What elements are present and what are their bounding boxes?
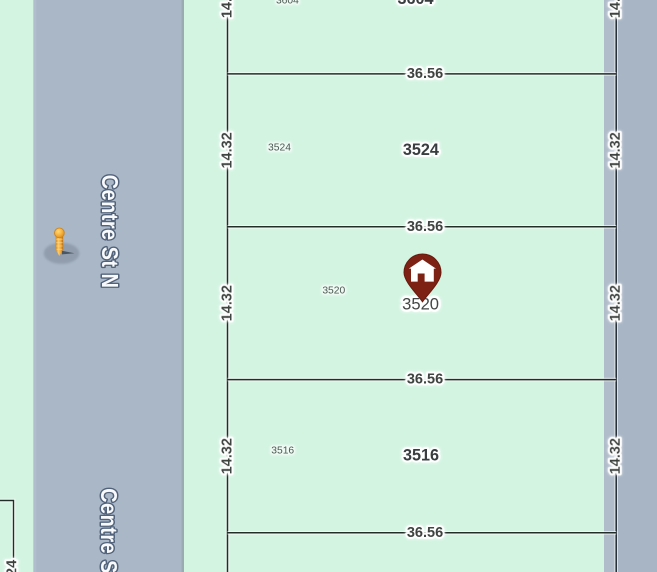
svg-text:Centre St N: Centre St N	[97, 175, 124, 289]
svg-text:14.32: 14.32	[608, 438, 624, 474]
svg-text:3516: 3516	[271, 446, 294, 457]
svg-text:3604: 3604	[276, 0, 299, 6]
svg-text:14.24: 14.24	[4, 560, 20, 572]
svg-text:3524: 3524	[403, 141, 439, 159]
svg-text:36.56: 36.56	[407, 219, 443, 235]
svg-text:36.56: 36.56	[407, 66, 443, 82]
svg-text:14.32: 14.32	[608, 285, 624, 321]
svg-text:36.56: 36.56	[407, 372, 443, 388]
svg-text:14.32: 14.32	[608, 132, 624, 168]
svg-text:3604: 3604	[397, 0, 433, 8]
svg-text:3520: 3520	[322, 286, 345, 297]
svg-text:14.32: 14.32	[220, 132, 236, 168]
svg-text:3516: 3516	[403, 446, 439, 464]
svg-text:36.56: 36.56	[407, 525, 443, 541]
svg-text:3524: 3524	[268, 143, 291, 154]
svg-text:14.32: 14.32	[220, 438, 236, 474]
svg-text:14.32: 14.32	[220, 285, 236, 321]
svg-text:Centre St N: Centre St N	[96, 488, 123, 572]
svg-text:14.32: 14.32	[220, 0, 236, 18]
svg-text:14.32: 14.32	[608, 0, 624, 18]
